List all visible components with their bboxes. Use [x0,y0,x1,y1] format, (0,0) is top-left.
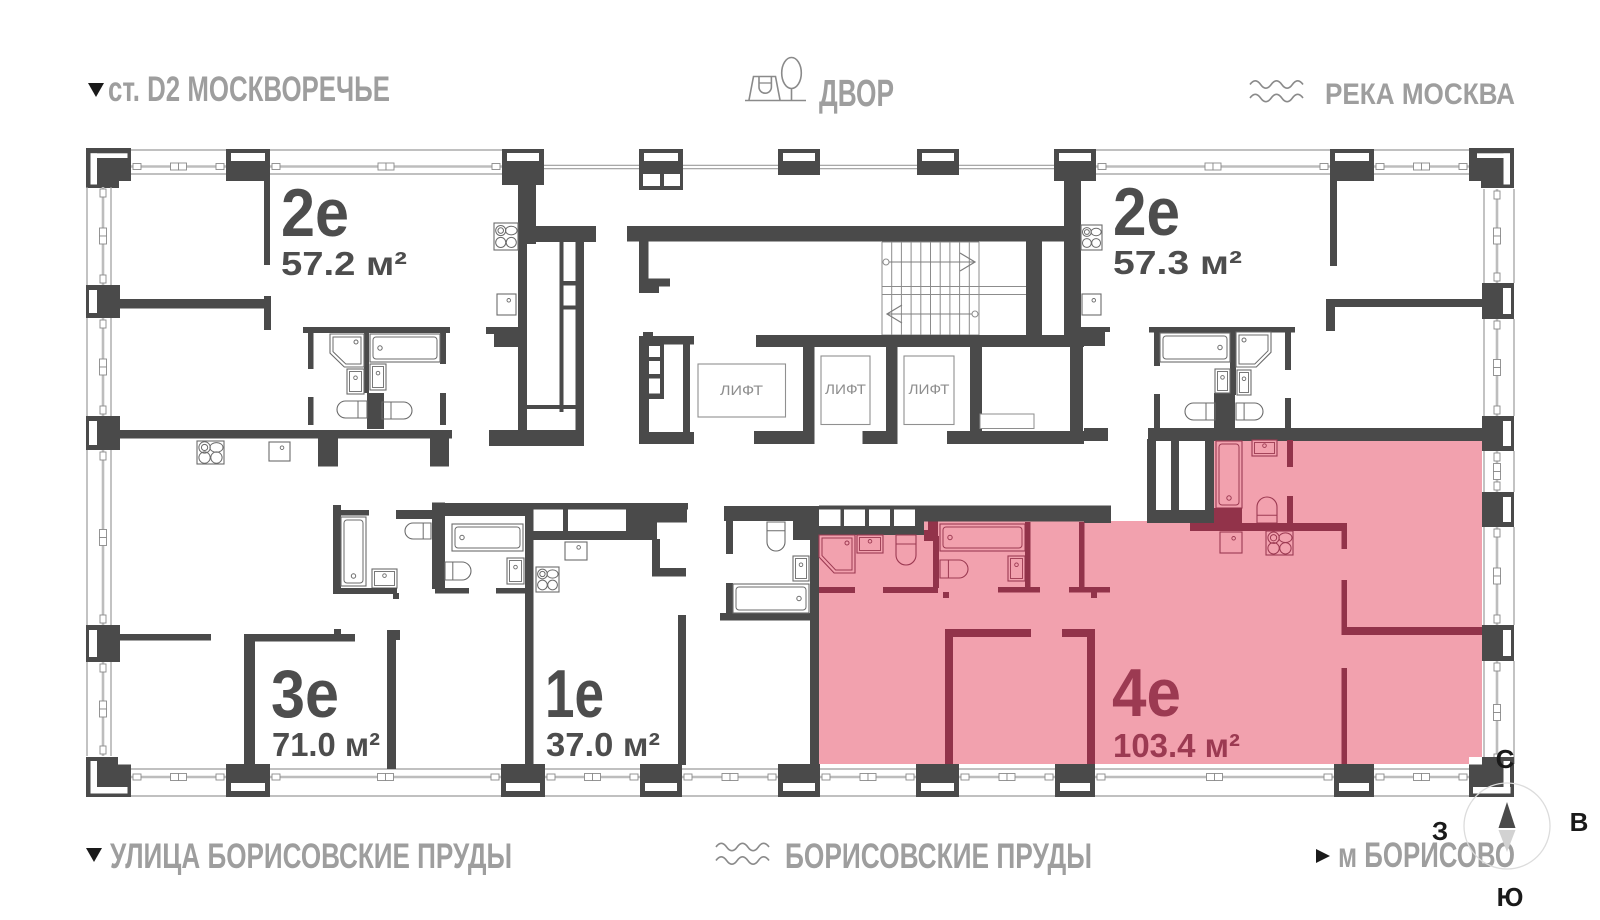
svg-text:2е: 2е [1113,174,1180,250]
svg-text:РЕКА МОСКВА: РЕКА МОСКВА [1325,78,1515,111]
svg-text:2е: 2е [281,175,349,251]
svg-text:103.4 м²: 103.4 м² [1113,727,1240,764]
svg-text:3е: 3е [271,656,339,732]
svg-text:Ю: Ю [1497,882,1524,912]
svg-text:ст. D2 МОСКВОРЕЧЬЕ: ст. D2 МОСКВОРЕЧЬЕ [108,70,390,109]
svg-text:71.0 м²: 71.0 м² [272,726,380,763]
svg-text:м БОРИСОВО: м БОРИСОВО [1338,836,1515,875]
svg-text:ЛИФТ: ЛИФТ [909,382,950,397]
svg-text:57.3 м²: 57.3 м² [1113,244,1242,281]
svg-text:БОРИСОВСКИЕ ПРУДЫ: БОРИСОВСКИЕ ПРУДЫ [785,837,1092,876]
svg-text:УЛИЦА БОРИСОВСКИЕ ПРУДЫ: УЛИЦА БОРИСОВСКИЕ ПРУДЫ [110,837,512,876]
svg-text:57.2 м²: 57.2 м² [281,245,407,282]
svg-text:З: З [1432,816,1448,846]
svg-text:1е: 1е [545,656,604,732]
svg-text:4е: 4е [1112,655,1181,731]
svg-text:ЛИФТ: ЛИФТ [825,382,866,397]
svg-text:С: С [1496,744,1515,774]
svg-text:ЛИФТ: ЛИФТ [720,382,763,398]
svg-text:В: В [1570,807,1589,837]
svg-text:37.0 м²: 37.0 м² [546,726,660,763]
svg-text:ДВОР: ДВОР [819,73,894,115]
